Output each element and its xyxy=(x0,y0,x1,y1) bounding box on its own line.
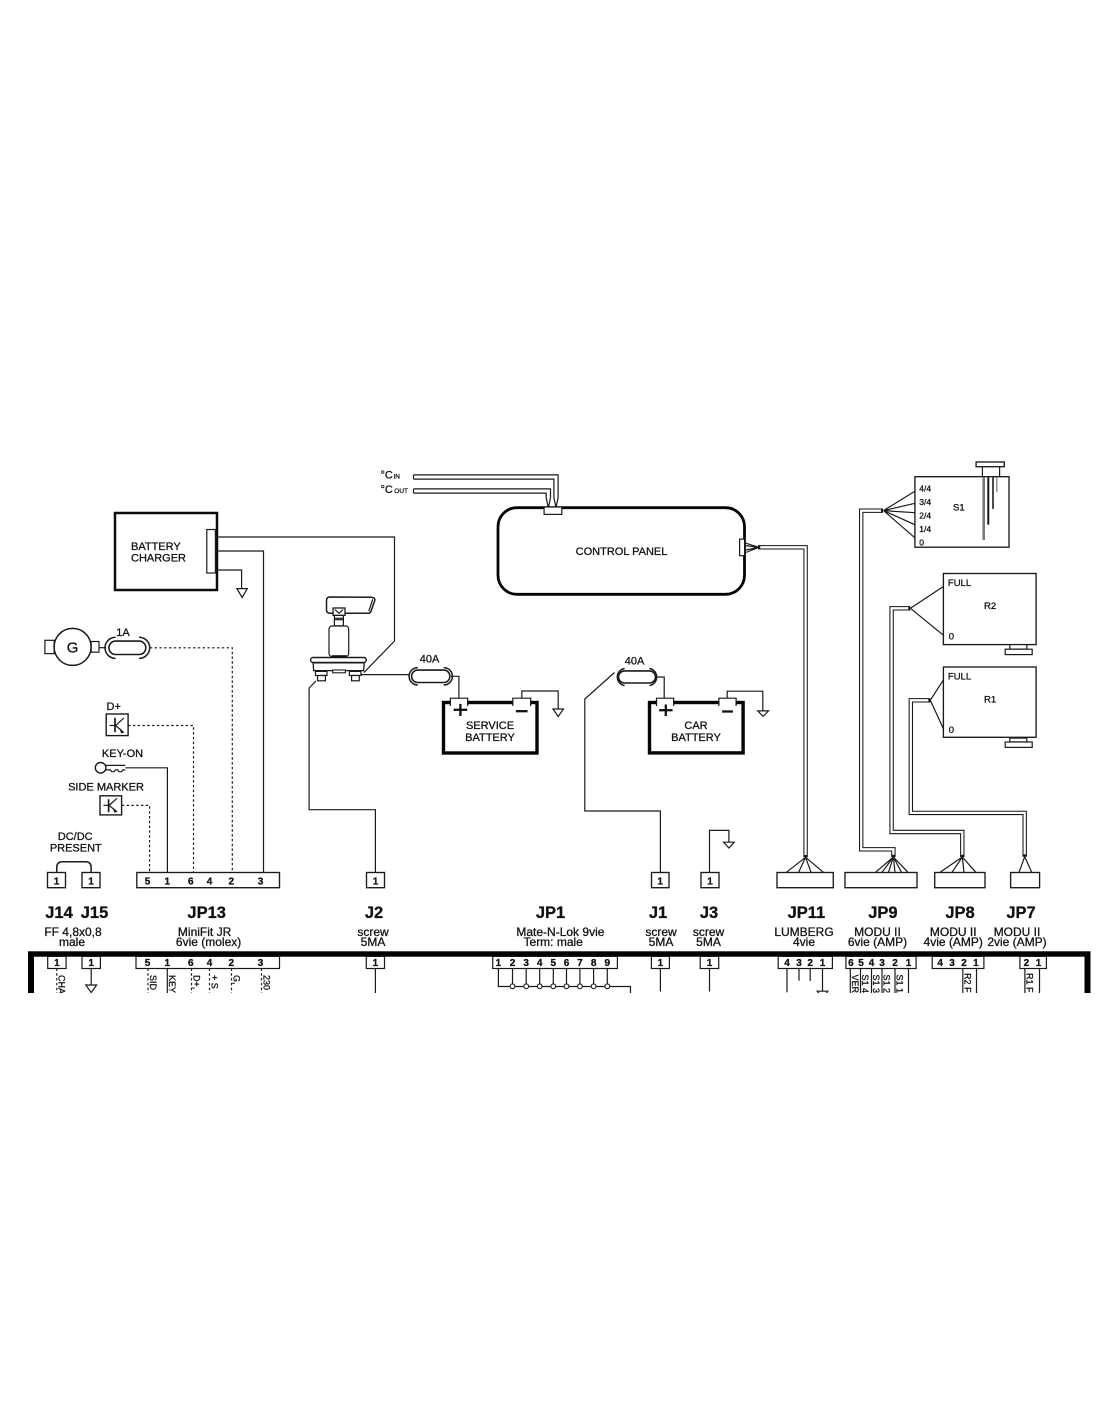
svg-text:1: 1 xyxy=(54,876,60,887)
svg-text:+ S: + S xyxy=(209,975,219,989)
svg-text:1: 1 xyxy=(54,958,60,969)
svg-text:3: 3 xyxy=(258,876,264,887)
svg-text:J1: J1 xyxy=(649,904,667,922)
svg-text:2: 2 xyxy=(1024,958,1030,969)
svg-text:1: 1 xyxy=(88,958,94,969)
svg-text:SIDE MARKER: SIDE MARKER xyxy=(68,781,144,793)
svg-text:2: 2 xyxy=(961,958,967,969)
svg-text:40A: 40A xyxy=(420,654,440,666)
svg-text:J2: J2 xyxy=(365,904,383,922)
svg-text:1: 1 xyxy=(657,876,663,887)
svg-text:1: 1 xyxy=(373,876,379,887)
svg-text:1: 1 xyxy=(707,958,713,969)
svg-text:1: 1 xyxy=(906,958,912,969)
svg-text:5: 5 xyxy=(858,958,864,969)
svg-text:2: 2 xyxy=(229,876,235,887)
svg-text:8: 8 xyxy=(591,958,597,969)
svg-text:1: 1 xyxy=(973,958,979,969)
svg-text:J3: J3 xyxy=(700,904,718,922)
svg-text:R1: R1 xyxy=(984,695,996,706)
svg-text:3: 3 xyxy=(796,958,802,969)
svg-text:2vie (AMP): 2vie (AMP) xyxy=(987,935,1046,949)
svg-text:KEY: KEY xyxy=(167,975,177,993)
svg-text:BATTERY: BATTERY xyxy=(465,732,515,744)
svg-text:D+: D+ xyxy=(107,701,121,713)
svg-text:IN: IN xyxy=(394,474,401,481)
svg-text:G,: G, xyxy=(231,975,241,985)
svg-text:FULL: FULL xyxy=(948,578,971,589)
svg-text:1/4: 1/4 xyxy=(919,524,931,534)
svg-text:J15: J15 xyxy=(81,904,109,922)
svg-text:6: 6 xyxy=(188,958,194,969)
svg-text:G: G xyxy=(67,639,79,656)
svg-text:male: male xyxy=(59,935,85,949)
svg-text:JP13: JP13 xyxy=(187,904,226,922)
svg-text:CHARGER: CHARGER xyxy=(131,553,186,565)
svg-text:4: 4 xyxy=(207,876,213,887)
svg-text:JP11: JP11 xyxy=(788,904,826,922)
svg-text:1: 1 xyxy=(165,876,171,887)
svg-text:S1: S1 xyxy=(953,503,965,514)
svg-text:0: 0 xyxy=(949,725,954,736)
svg-text:5MA: 5MA xyxy=(649,935,674,949)
svg-text:6: 6 xyxy=(188,876,194,887)
svg-text:SERVICE: SERVICE xyxy=(466,720,514,732)
svg-text:FULL: FULL xyxy=(948,672,971,683)
svg-text:5: 5 xyxy=(145,876,151,887)
svg-text:7: 7 xyxy=(577,958,583,969)
svg-text:CAR: CAR xyxy=(684,720,707,732)
svg-text:R2 F: R2 F xyxy=(963,973,973,993)
svg-text:OUT: OUT xyxy=(394,488,408,495)
svg-text:5MA: 5MA xyxy=(361,935,386,949)
svg-text:4vie: 4vie xyxy=(793,935,815,949)
svg-text:4/4: 4/4 xyxy=(919,484,931,494)
svg-text:5: 5 xyxy=(551,958,557,969)
svg-text:VER: VER xyxy=(850,975,860,994)
svg-text:0: 0 xyxy=(949,631,954,642)
svg-text:1: 1 xyxy=(88,876,94,887)
svg-text:2/4: 2/4 xyxy=(919,511,931,521)
svg-text:1: 1 xyxy=(1036,958,1042,969)
svg-text:JP1: JP1 xyxy=(536,904,565,922)
svg-text:2: 2 xyxy=(510,958,516,969)
svg-text:6vie (AMP): 6vie (AMP) xyxy=(848,935,907,949)
svg-text:JP7: JP7 xyxy=(1006,904,1035,922)
svg-text:R2: R2 xyxy=(984,601,996,612)
svg-text:6: 6 xyxy=(564,958,570,969)
svg-text:JP9: JP9 xyxy=(868,904,897,922)
svg-text:0: 0 xyxy=(919,537,924,547)
svg-text:4vie (AMP): 4vie (AMP) xyxy=(924,935,983,949)
svg-text:4: 4 xyxy=(784,958,790,969)
svg-text:BATTERY: BATTERY xyxy=(671,732,721,744)
svg-text:6: 6 xyxy=(848,958,854,969)
svg-text:S1 2: S1 2 xyxy=(882,975,892,994)
svg-text:S1 1: S1 1 xyxy=(895,975,905,994)
svg-text:4: 4 xyxy=(207,958,213,969)
svg-text:S1 3: S1 3 xyxy=(871,975,881,994)
svg-text:2: 2 xyxy=(229,958,235,969)
svg-text:1: 1 xyxy=(496,958,502,969)
svg-text:230: 230 xyxy=(261,975,271,990)
svg-text:2: 2 xyxy=(892,958,898,969)
svg-text:CONTROL PANEL: CONTROL PANEL xyxy=(576,546,668,558)
svg-text:1: 1 xyxy=(820,958,826,969)
svg-text:CHA: CHA xyxy=(57,975,67,994)
svg-text:JP8: JP8 xyxy=(945,904,974,922)
svg-text:5MA: 5MA xyxy=(696,935,721,949)
svg-text:1: 1 xyxy=(658,958,664,969)
svg-text:4: 4 xyxy=(869,958,875,969)
svg-text:DC/DC: DC/DC xyxy=(58,831,93,843)
svg-text:4: 4 xyxy=(937,958,943,969)
svg-text:3/4: 3/4 xyxy=(919,497,931,507)
svg-text:9: 9 xyxy=(605,958,611,969)
svg-text:1: 1 xyxy=(707,876,713,887)
svg-text:3: 3 xyxy=(523,958,529,969)
svg-text:PRESENT: PRESENT xyxy=(50,842,102,854)
svg-text:3: 3 xyxy=(949,958,955,969)
svg-text:2: 2 xyxy=(807,958,813,969)
svg-text:4: 4 xyxy=(537,958,543,969)
svg-text:°C: °C xyxy=(381,470,393,482)
svg-text:°C: °C xyxy=(381,484,393,496)
svg-text:6vie (molex): 6vie (molex) xyxy=(176,935,241,949)
svg-text:Term: male: Term: male xyxy=(524,935,584,949)
svg-text:40A: 40A xyxy=(625,656,645,668)
svg-text:R1 F: R1 F xyxy=(1025,973,1035,993)
svg-text:D+,: D+, xyxy=(191,975,201,989)
svg-text:5: 5 xyxy=(145,958,151,969)
svg-text:3: 3 xyxy=(258,958,264,969)
svg-text:J14: J14 xyxy=(45,904,73,922)
svg-text:S1 4: S1 4 xyxy=(860,975,870,994)
svg-text:1A: 1A xyxy=(116,627,130,639)
svg-text:KEY-ON: KEY-ON xyxy=(102,748,143,760)
svg-text:SID: SID xyxy=(148,975,158,991)
svg-text:3: 3 xyxy=(879,958,885,969)
svg-text:1: 1 xyxy=(373,958,379,969)
svg-text:1: 1 xyxy=(165,958,171,969)
svg-text:BATTERY: BATTERY xyxy=(131,541,181,553)
